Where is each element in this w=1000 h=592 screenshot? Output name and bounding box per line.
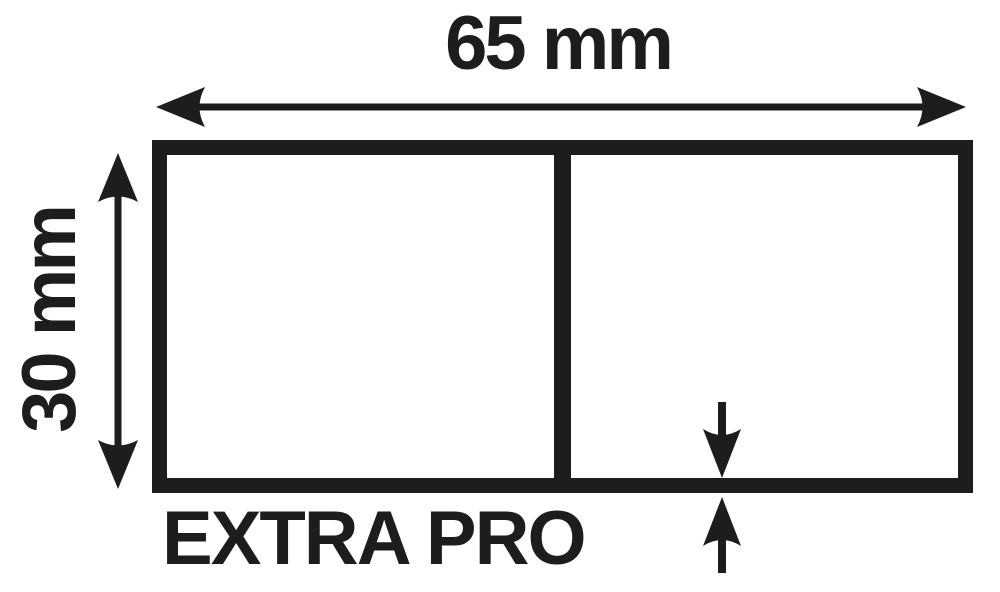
height-dimension-arrow [98,153,138,489]
width-dimension-arrow [156,87,966,127]
arrowhead-left-icon [156,87,205,127]
arrowhead-up-icon [703,497,741,546]
height-dimension-label: 30 mm [12,207,88,433]
width-dimension-label: 65 mm [445,6,671,82]
product-name-label: EXTRA PRO [162,501,585,577]
arrowhead-down-icon [98,440,138,489]
arrowhead-up-icon [98,153,138,202]
profile-center-wall [554,147,571,486]
profile-diagram: 65 mm 30 mm 1,8 mm EXTRA PRO [0,0,1000,592]
arrowhead-right-icon [917,87,966,127]
thickness-arrow-up [703,497,741,573]
